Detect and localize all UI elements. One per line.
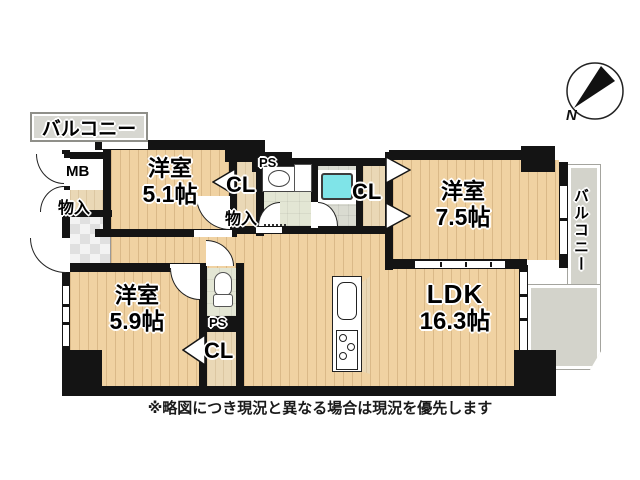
sliding-door-tick — [490, 262, 492, 267]
pipe-space-mid-label: PS — [209, 315, 226, 330]
window — [519, 272, 528, 350]
compass: N — [558, 58, 628, 130]
bedroom1-label: 洋室 5.1帖 — [111, 157, 229, 207]
washer-pan — [294, 164, 312, 192]
stove-burner — [347, 343, 355, 351]
bedroom3-size: 5.9帖 — [75, 309, 199, 335]
stove-burner — [339, 334, 347, 342]
bathtub — [321, 173, 353, 200]
stove-burner — [339, 352, 347, 360]
bedroom3-label: 洋室 5.9帖 — [75, 284, 199, 334]
ldk-name: LDK — [390, 280, 520, 309]
toilet-closet-label: CL — [204, 338, 233, 364]
ldk-size: 16.3帖 — [390, 309, 520, 336]
balcony-top-label-box: バルコニー — [30, 112, 148, 142]
balcony-top-label: バルコニー — [42, 114, 137, 141]
hall-storage-label: 物入 — [225, 205, 257, 229]
toilet-bowl — [214, 272, 232, 296]
storage-left-label: 物入 — [58, 194, 90, 218]
sliding-door-tick — [440, 262, 442, 267]
washroom-threshold-dots — [264, 221, 286, 226]
meter-box-door-arc — [36, 154, 64, 184]
bathroom-door-gap — [311, 202, 318, 228]
wall-corner-block — [521, 146, 555, 172]
meter-box-label: MB — [66, 163, 89, 180]
bedroom3-name: 洋室 — [75, 284, 199, 309]
bedroom2-closet-label: CL — [352, 179, 381, 205]
wall-corner-block — [514, 350, 556, 390]
compass-north-label: N — [566, 107, 578, 124]
disclaimer-note: ※略図につき現況と異なる場合は現況を優先します — [0, 397, 640, 418]
bedroom2-label: 洋室 7.5帖 — [398, 180, 528, 230]
bedroom1-size: 5.1帖 — [111, 182, 229, 208]
bedroom1-name: 洋室 — [111, 157, 229, 182]
window-tick — [519, 294, 528, 297]
window — [62, 286, 70, 346]
entrance-door-arc — [30, 238, 66, 273]
toilet-closet-door-mark — [182, 334, 206, 366]
wall — [103, 140, 111, 236]
window-tick — [62, 322, 70, 325]
bedroom1-door-gap — [194, 230, 232, 237]
wall-corner-block — [62, 350, 102, 388]
washbasin-sink — [268, 170, 290, 187]
balcony-right-label: バルコニー — [570, 188, 591, 273]
floorplan-image: バルコニー 洋室 5.1帖 洋室 7.5帖 洋室 5.9帖 LDK 16.3帖 … — [0, 0, 640, 480]
sliding-door-tick — [465, 262, 467, 267]
wall — [62, 386, 556, 396]
kitchen-sink — [337, 282, 357, 320]
corridor-floor — [111, 234, 199, 263]
hall-closet-label: CL — [226, 172, 255, 198]
window-tick — [62, 304, 70, 307]
washroom-door-gap — [256, 227, 282, 233]
pipe-space-top-label: PS — [259, 155, 276, 170]
window-tick — [559, 218, 568, 221]
bedroom2-name: 洋室 — [398, 180, 528, 205]
ldk-label: LDK 16.3帖 — [390, 280, 520, 336]
bedroom2-size: 7.5帖 — [398, 205, 528, 231]
window-tick — [519, 318, 528, 321]
toilet-tank — [213, 294, 233, 307]
